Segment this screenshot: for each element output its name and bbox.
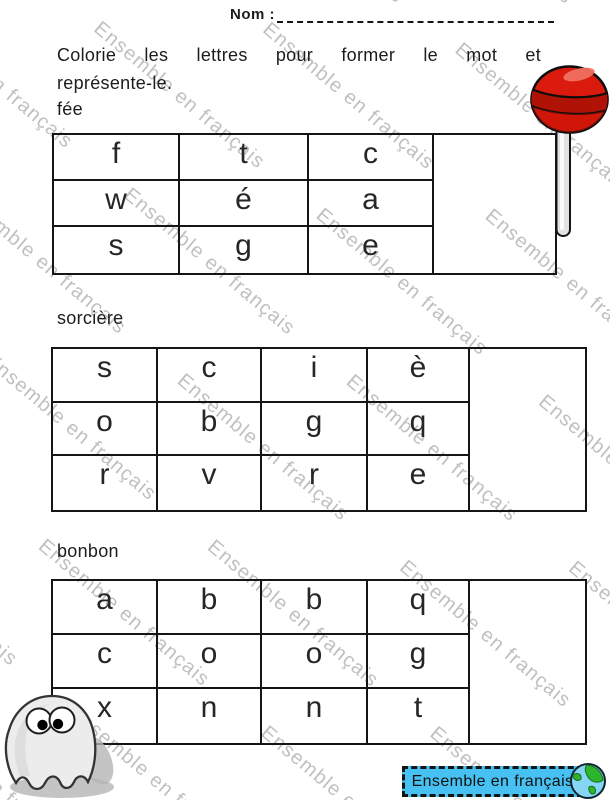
letter: s (97, 351, 112, 384)
letter: a (96, 583, 113, 616)
letter: t (414, 691, 422, 724)
letter-cell[interactable]: o (262, 635, 368, 689)
word-label-fee: fée (57, 99, 83, 120)
letter-cell[interactable]: q (368, 403, 470, 457)
name-label: Nom : (230, 6, 275, 23)
empty-drawing-cell[interactable] (470, 581, 585, 743)
letter: o (306, 637, 323, 670)
letter: c (363, 137, 378, 170)
letter-cell[interactable]: e (368, 456, 470, 510)
letter: q (410, 583, 427, 616)
ghost-left-pupil (37, 720, 47, 730)
name-input-line[interactable] (277, 4, 554, 23)
letter: b (306, 583, 323, 616)
letter: o (201, 637, 218, 670)
letter-cell[interactable]: w (54, 181, 180, 227)
letter-cell[interactable]: s (54, 227, 180, 273)
brand-badge-label: Ensemble en français (412, 773, 574, 791)
word-label-sorciere: sorcière (57, 308, 123, 329)
letter: o (96, 405, 113, 438)
letter-cell[interactable]: r (262, 456, 368, 510)
letter: e (410, 458, 427, 491)
worksheet-page: Ensemble en françaisEnsemble en français… (0, 0, 610, 800)
letter: q (410, 405, 427, 438)
watermark-text: Ensemble en français (0, 315, 19, 537)
letter: c (97, 637, 112, 670)
letter: é (235, 183, 252, 216)
letter: r (100, 458, 110, 491)
letter-cell[interactable]: c (309, 135, 434, 181)
letter-cell[interactable]: é (180, 181, 309, 227)
globe-icon (567, 760, 609, 800)
letter: g (235, 229, 252, 262)
letter-cell[interactable]: v (158, 456, 262, 510)
ghost-image (0, 688, 125, 800)
letter-cell[interactable]: n (262, 689, 368, 743)
letter-cell[interactable]: c (53, 635, 158, 689)
letter: n (201, 691, 218, 724)
letter: g (306, 405, 323, 438)
letter-cell[interactable]: b (158, 581, 262, 635)
letter-cell[interactable]: r (53, 456, 158, 510)
letter: t (239, 137, 247, 170)
letter-cell[interactable]: t (368, 689, 470, 743)
letter: a (362, 183, 379, 216)
letter-cell[interactable]: n (158, 689, 262, 743)
letter-cell[interactable]: q (368, 581, 470, 635)
letter-cell[interactable]: b (262, 581, 368, 635)
instructions-line-2: représente-le. (57, 73, 541, 94)
letter: b (201, 405, 218, 438)
empty-drawing-cell[interactable] (470, 349, 585, 510)
letter-cell[interactable]: i (262, 349, 368, 403)
letter-table-fee: ftcwéasge (52, 133, 557, 275)
letter-cell[interactable]: è (368, 349, 470, 403)
watermark-text: Ensemble en français (8, 0, 243, 20)
letter: è (410, 351, 427, 384)
letter: i (311, 351, 318, 384)
letter-cell[interactable]: o (53, 403, 158, 457)
ghost-right-pupil (53, 719, 63, 729)
instructions-line-1: Colorie les lettres pour former le mot e… (57, 45, 541, 66)
letter: b (201, 583, 218, 616)
letter-cell[interactable]: c (158, 349, 262, 403)
letter: e (362, 229, 379, 262)
letter-cell[interactable]: g (180, 227, 309, 273)
lollipop-image (523, 58, 610, 240)
letter-cell[interactable]: e (309, 227, 434, 273)
letter: c (202, 351, 217, 384)
letter-table-bonbon: abbqcoogxnnt (51, 579, 587, 745)
letter-cell[interactable]: a (309, 181, 434, 227)
letter: r (309, 458, 319, 491)
ghost-left-eye (27, 709, 52, 734)
letter: g (410, 637, 427, 670)
brand-badge: Ensemble en français (402, 766, 583, 797)
letter: n (306, 691, 323, 724)
letter-cell[interactable]: t (180, 135, 309, 181)
letter-cell[interactable]: o (158, 635, 262, 689)
letter: v (202, 458, 217, 491)
ghost-right-eye (50, 708, 75, 733)
letter-cell[interactable]: b (158, 403, 262, 457)
letter: s (109, 229, 124, 262)
letter-cell[interactable]: s (53, 349, 158, 403)
letter-table-sorciere: scièobgqrvre (51, 347, 587, 512)
letter-cell[interactable]: f (54, 135, 180, 181)
letter-cell[interactable]: a (53, 581, 158, 635)
watermark-text: Ensemble en français (0, 0, 75, 20)
letter: f (112, 137, 120, 170)
watermark-text: Ensemble en français (0, 482, 49, 704)
letter-cell[interactable]: g (368, 635, 470, 689)
letter: w (105, 183, 127, 216)
watermark-text: Ensemble en français (562, 0, 610, 62)
word-label-bonbon: bonbon (57, 541, 119, 562)
letter-cell[interactable]: g (262, 403, 368, 457)
